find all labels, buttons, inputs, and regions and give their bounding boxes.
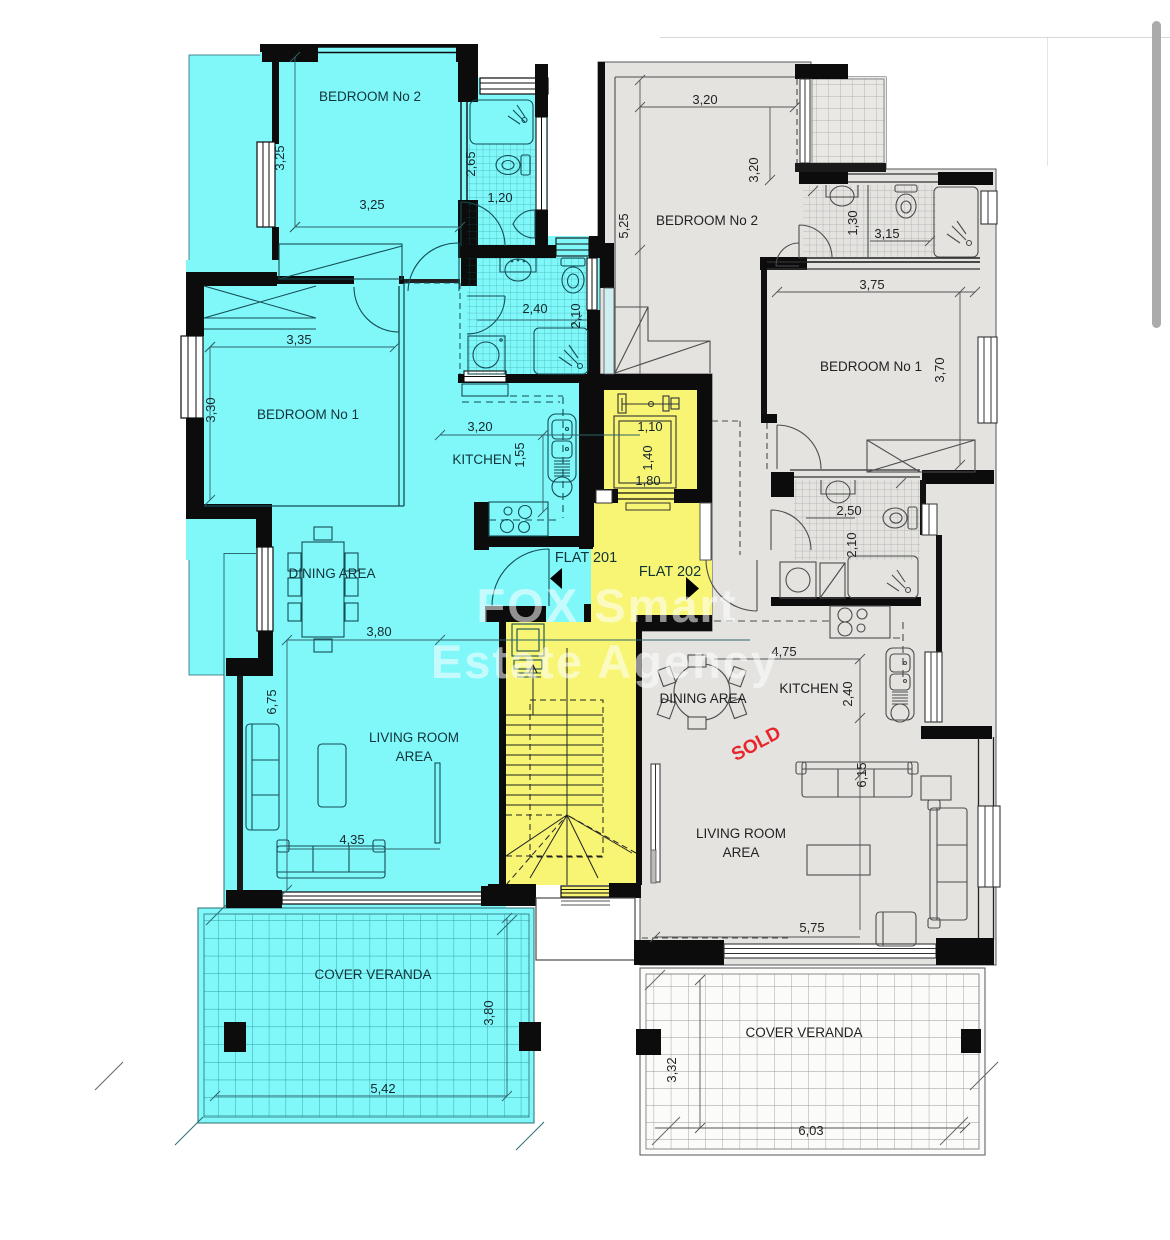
svg-text:6,03: 6,03 bbox=[798, 1123, 823, 1138]
svg-text:3,32: 3,32 bbox=[664, 1057, 679, 1082]
svg-text:1,30: 1,30 bbox=[845, 210, 860, 235]
svg-text:KITCHEN: KITCHEN bbox=[452, 452, 511, 467]
svg-text:LIVING ROOM: LIVING ROOM bbox=[696, 826, 786, 841]
svg-text:3,25: 3,25 bbox=[272, 145, 287, 170]
svg-text:6,15: 6,15 bbox=[854, 762, 869, 787]
svg-text:FLAT 202: FLAT 202 bbox=[639, 564, 701, 580]
svg-text:2,10: 2,10 bbox=[568, 303, 583, 328]
svg-text:3,20: 3,20 bbox=[467, 419, 492, 434]
svg-text:LIVING ROOM: LIVING ROOM bbox=[369, 730, 459, 745]
svg-text:BEDROOM No 1: BEDROOM No 1 bbox=[820, 359, 922, 374]
svg-text:BEDROOM No 2: BEDROOM No 2 bbox=[656, 213, 758, 228]
svg-text:3,15: 3,15 bbox=[874, 226, 899, 241]
svg-text:DINING AREA: DINING AREA bbox=[288, 566, 375, 581]
svg-text:1,55: 1,55 bbox=[512, 442, 527, 467]
svg-text:3,35: 3,35 bbox=[286, 332, 311, 347]
svg-text:DINING AREA: DINING AREA bbox=[659, 691, 746, 706]
svg-text:2,50: 2,50 bbox=[836, 503, 861, 518]
svg-text:1,40: 1,40 bbox=[640, 445, 655, 470]
svg-text:BEDROOM No 1: BEDROOM No 1 bbox=[257, 407, 359, 422]
svg-text:COVER VERANDA: COVER VERANDA bbox=[745, 1025, 862, 1040]
svg-text:6,75: 6,75 bbox=[264, 689, 279, 714]
svg-text:BEDROOM No 2: BEDROOM No 2 bbox=[319, 89, 421, 104]
svg-text:2,65: 2,65 bbox=[463, 151, 478, 176]
svg-text:3,25: 3,25 bbox=[359, 197, 384, 212]
svg-text:5,25: 5,25 bbox=[616, 213, 631, 238]
svg-text:FOX Smart: FOX Smart bbox=[477, 579, 738, 632]
svg-text:3,80: 3,80 bbox=[481, 1000, 496, 1025]
svg-text:3,75: 3,75 bbox=[859, 277, 884, 292]
svg-text:COVER VERANDA: COVER VERANDA bbox=[314, 967, 431, 982]
svg-text:5,75: 5,75 bbox=[799, 920, 824, 935]
svg-text:AREA: AREA bbox=[723, 845, 760, 860]
svg-text:2,40: 2,40 bbox=[522, 301, 547, 316]
svg-text:3,80: 3,80 bbox=[366, 624, 391, 639]
svg-text:1,80: 1,80 bbox=[635, 473, 660, 488]
svg-text:1,10: 1,10 bbox=[637, 419, 662, 434]
svg-text:3,70: 3,70 bbox=[932, 357, 947, 382]
svg-text:4,35: 4,35 bbox=[339, 832, 364, 847]
svg-text:FLAT 201: FLAT 201 bbox=[555, 550, 617, 566]
svg-text:3,30: 3,30 bbox=[203, 397, 218, 422]
svg-text:Estate Agency: Estate Agency bbox=[431, 635, 779, 688]
svg-text:1,20: 1,20 bbox=[487, 190, 512, 205]
svg-text:5,42: 5,42 bbox=[370, 1081, 395, 1096]
svg-text:KITCHEN: KITCHEN bbox=[779, 681, 838, 696]
svg-text:3,20: 3,20 bbox=[746, 157, 761, 182]
svg-text:AREA: AREA bbox=[396, 749, 433, 764]
svg-text:3,20: 3,20 bbox=[692, 92, 717, 107]
svg-text:2,10: 2,10 bbox=[844, 532, 859, 557]
svg-text:2,40: 2,40 bbox=[840, 681, 855, 706]
